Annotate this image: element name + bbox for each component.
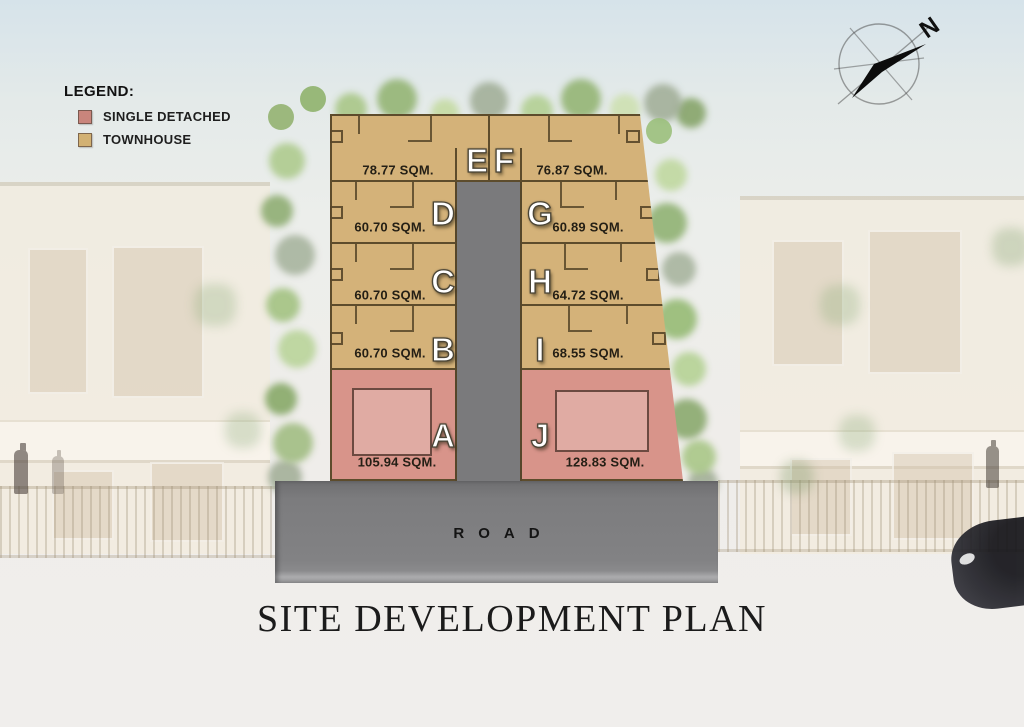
building-footprint-A [352, 388, 432, 456]
unit-detail [329, 130, 343, 143]
fence-left [0, 486, 276, 558]
unit-detail [355, 244, 357, 262]
unit-detail [620, 244, 622, 262]
unit-detail [390, 306, 414, 332]
lot-area-E: 78.77 SQM. [362, 163, 433, 178]
unit-detail [390, 244, 414, 270]
unit-detail [390, 182, 414, 208]
lot-letter-H: H [528, 263, 552, 301]
window [868, 230, 962, 374]
compass-north-label: N [915, 12, 945, 44]
lot-letter-B: B [431, 331, 455, 369]
building-footprint-J [555, 390, 649, 452]
unit-detail [652, 332, 666, 345]
lot-letter-F: F [494, 142, 514, 180]
road-label: ROAD [275, 525, 718, 542]
lot-area-H: 64.72 SQM. [552, 288, 623, 303]
compass-needle [852, 44, 926, 98]
lot-area-F: 76.87 SQM. [536, 163, 607, 178]
lot-plan: E F D G C H B I A J 78.77 SQM. 76.87 SQM… [330, 114, 683, 481]
road: ROAD [275, 481, 718, 583]
lot-area-C: 60.70 SQM. [354, 288, 425, 303]
window [28, 248, 88, 394]
unit-detail [358, 116, 360, 134]
unit-detail [618, 116, 620, 134]
lot-area-I: 68.55 SQM. [552, 346, 623, 361]
lot-letter-A: A [431, 417, 455, 455]
lot-area-G: 60.89 SQM. [552, 220, 623, 235]
unit-detail [560, 182, 584, 208]
lot-area-B: 60.70 SQM. [354, 346, 425, 361]
unit-detail [626, 306, 628, 324]
person-silhouette [52, 456, 64, 494]
window [772, 240, 844, 366]
single-detached-swatch [78, 110, 92, 124]
balcony-right [740, 430, 1024, 469]
lot-area-A: 105.94 SQM. [358, 455, 437, 470]
lot-letter-C: C [431, 263, 455, 301]
balcony-left [0, 420, 270, 463]
unit-detail [646, 268, 660, 281]
unit-detail [568, 306, 592, 332]
central-driveway [455, 182, 522, 481]
foliage-left-band [268, 104, 294, 130]
site-development-plan-page: E F D G C H B I A J 78.77 SQM. 76.87 SQM… [0, 0, 1024, 727]
person-silhouette [986, 446, 999, 488]
background-palm-trees [0, 0, 10, 10]
unit-detail [640, 206, 654, 219]
unit-detail [355, 182, 357, 200]
legend-item-townhouse: TOWNHOUSE [78, 132, 231, 147]
lot-letter-D: D [431, 195, 455, 233]
lot-divider [455, 148, 457, 182]
unit-detail [626, 130, 640, 143]
window [112, 246, 204, 398]
legend: LEGEND: SINGLE DETACHED TOWNHOUSE [64, 83, 231, 155]
legend-item-label: TOWNHOUSE [103, 132, 191, 147]
unit-detail [408, 116, 432, 142]
car-headlight [958, 551, 977, 567]
lot-letter-E: E [466, 142, 488, 180]
townhouse-swatch [78, 133, 92, 147]
foliage-right-band [646, 118, 672, 144]
unit-detail [564, 244, 588, 270]
unit-detail [615, 182, 617, 200]
unit-detail [548, 116, 572, 142]
unit-detail [329, 332, 343, 345]
page-title: SITE DEVELOPMENT PLAN [0, 597, 1024, 641]
lot-letter-G: G [527, 195, 553, 233]
person-silhouette [14, 450, 28, 494]
lot-area-J: 128.83 SQM. [566, 455, 645, 470]
unit-detail [355, 306, 357, 324]
lot-area-D: 60.70 SQM. [354, 220, 425, 235]
foliage-top-band [300, 86, 326, 112]
unit-detail [329, 268, 343, 281]
lot-divider [520, 148, 522, 182]
lot-letter-J: J [531, 417, 549, 455]
legend-item-single-detached: SINGLE DETACHED [78, 109, 231, 124]
lot-divider-EF [488, 114, 490, 182]
compass-rose-icon: N [826, 6, 948, 122]
lot-letter-I: I [535, 331, 544, 369]
unit-detail [329, 206, 343, 219]
legend-heading: LEGEND: [64, 83, 231, 100]
legend-item-label: SINGLE DETACHED [103, 109, 231, 124]
